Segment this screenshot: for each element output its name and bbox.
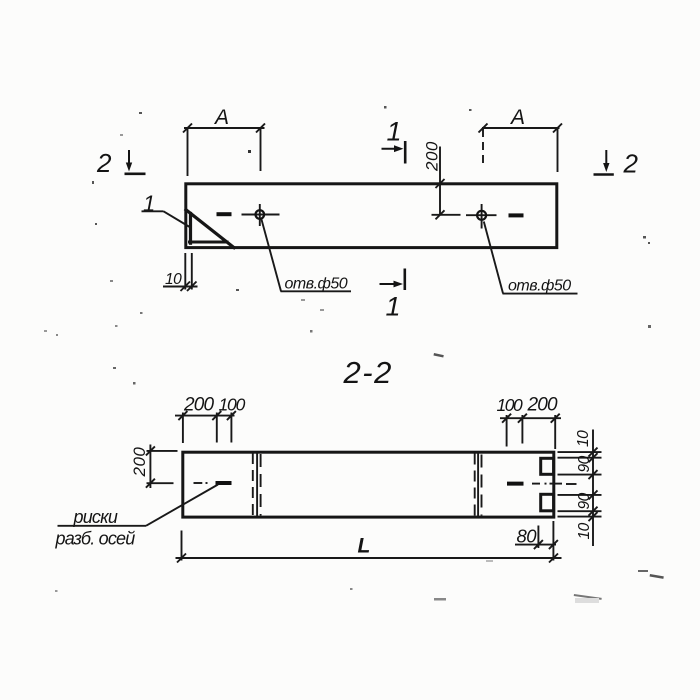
svg-text:100: 100	[497, 395, 523, 415]
svg-text:90: 90	[576, 455, 593, 472]
svg-text:90: 90	[576, 492, 593, 509]
svg-text:100: 100	[219, 395, 246, 415]
svg-text:200: 200	[423, 141, 442, 172]
svg-text:2: 2	[623, 149, 639, 179]
svg-text:отв.ф50: отв.ф50	[508, 278, 571, 295]
svg-text:200: 200	[130, 447, 149, 478]
svg-text:10: 10	[165, 271, 182, 288]
svg-text:риски: риски	[73, 507, 118, 527]
svg-text:разб. осей: разб. осей	[55, 529, 136, 549]
svg-text:1: 1	[386, 292, 401, 322]
svg-text:отв.ф50: отв.ф50	[285, 276, 348, 293]
svg-text:200: 200	[527, 395, 559, 416]
svg-text:1: 1	[387, 117, 402, 147]
svg-text:10: 10	[576, 522, 593, 539]
svg-text:A: A	[213, 106, 229, 129]
svg-text:A: A	[509, 106, 525, 129]
svg-text:80: 80	[517, 526, 538, 547]
svg-text:10: 10	[575, 430, 592, 447]
svg-text:2: 2	[96, 148, 112, 178]
svg-text:2-2: 2-2	[343, 355, 393, 390]
svg-text:200: 200	[183, 395, 215, 416]
svg-text:L: L	[358, 535, 371, 558]
